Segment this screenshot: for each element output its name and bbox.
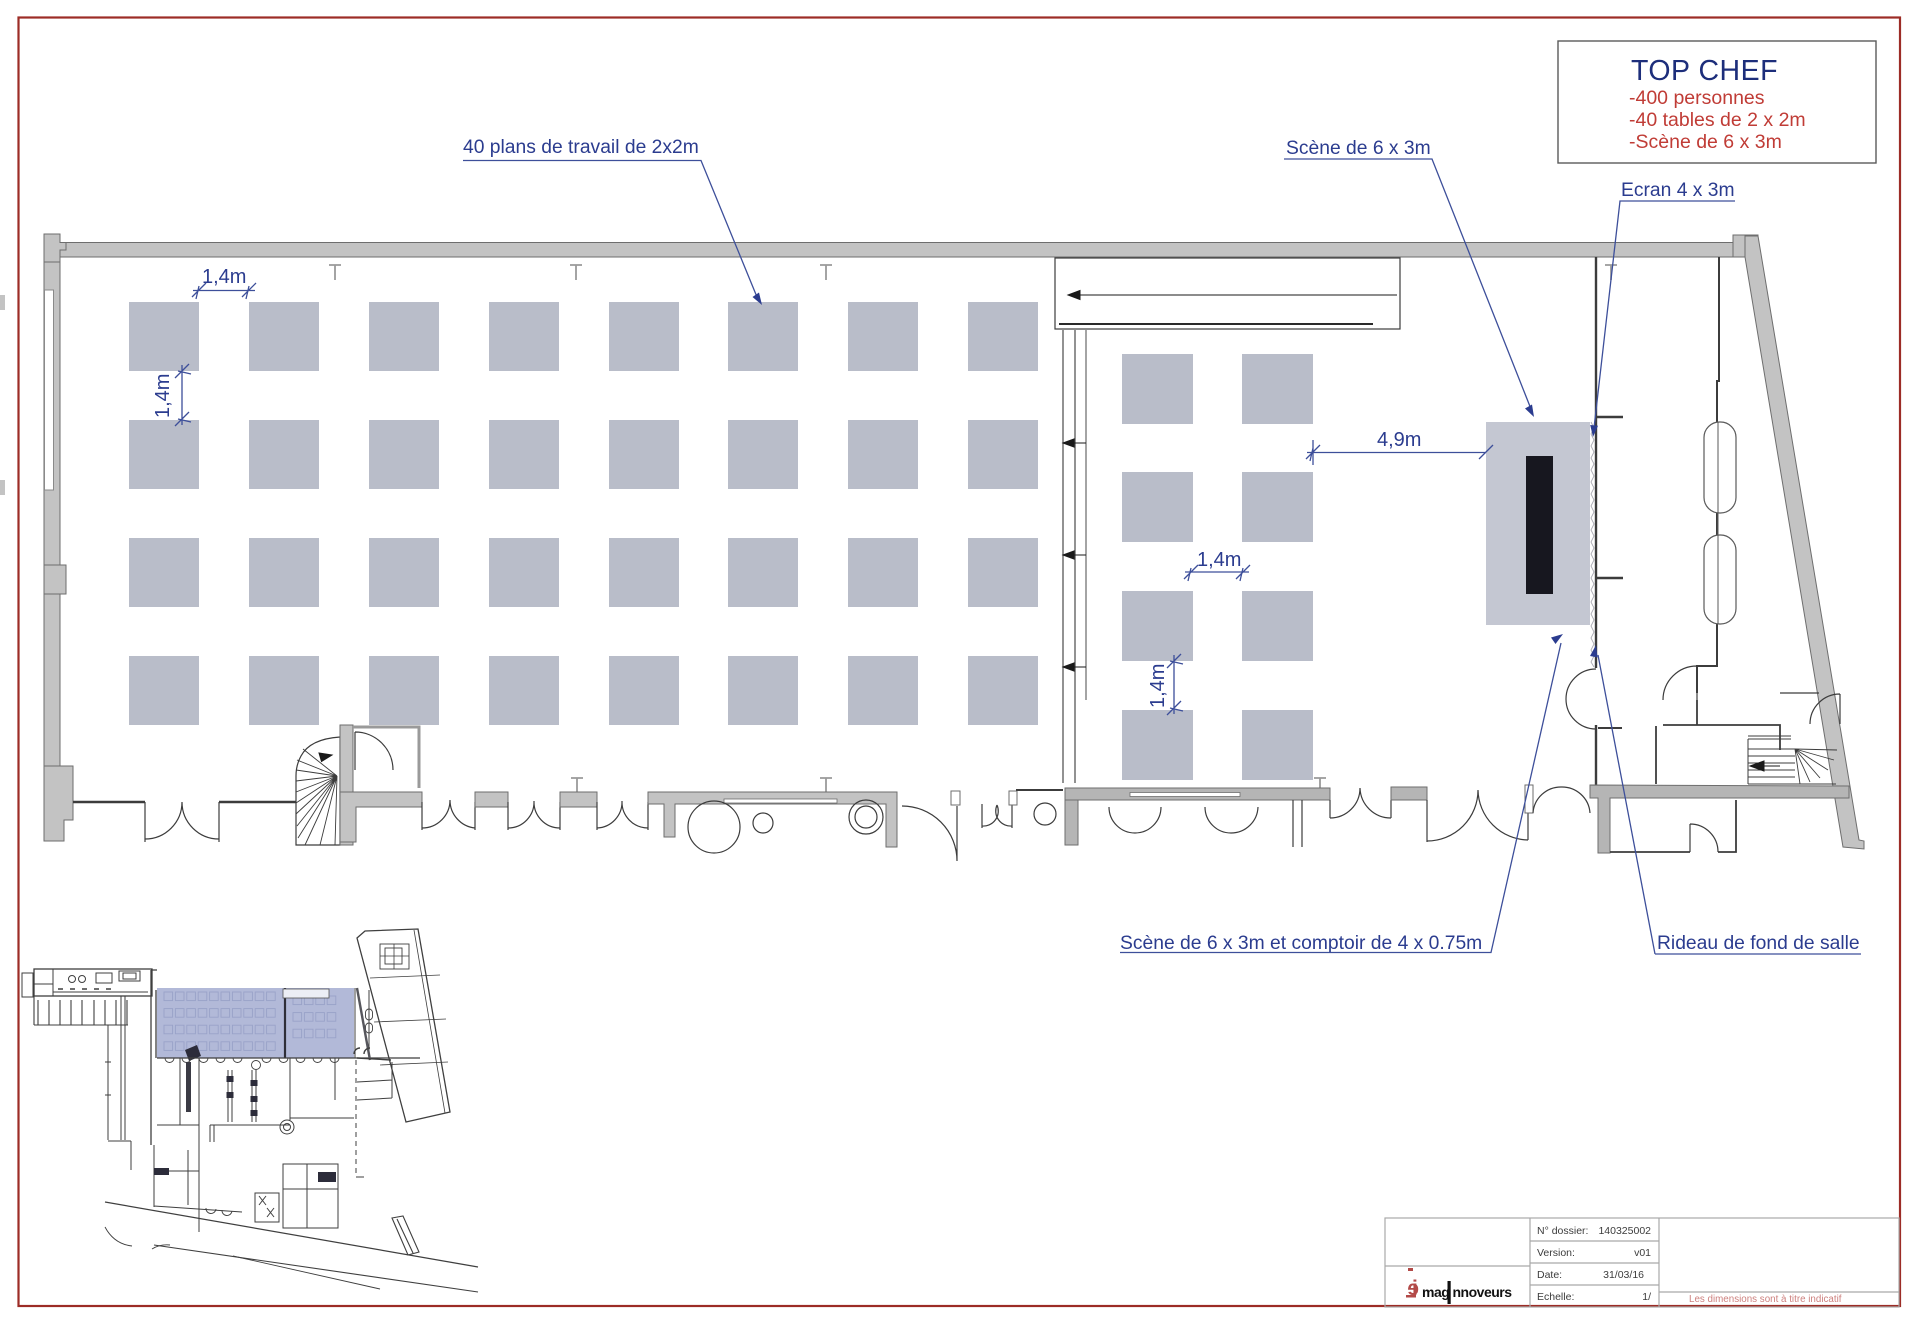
- svg-text:v01: v01: [1634, 1247, 1651, 1259]
- svg-text:mag: mag: [1422, 1284, 1449, 1300]
- svg-text:1,4m: 1,4m: [152, 374, 174, 418]
- svg-text:1,4m: 1,4m: [1197, 549, 1241, 571]
- svg-text:Scène de 6 x 3m: Scène de 6 x 3m: [1286, 138, 1431, 159]
- svg-text:1,4m: 1,4m: [202, 266, 246, 288]
- svg-text:31/03/16: 31/03/16: [1603, 1269, 1644, 1281]
- svg-text:Echelle:: Echelle:: [1537, 1291, 1574, 1303]
- svg-text:Version:: Version:: [1537, 1247, 1575, 1259]
- svg-text:nnoveurs: nnoveurs: [1453, 1284, 1513, 1300]
- svg-text:Scène de 6 x 3m et comptoir d: Scène de 6 x 3m et comptoir de 4 x 0.75m: [1120, 933, 1482, 954]
- svg-text:4,9m: 4,9m: [1377, 429, 1421, 451]
- svg-text:140325002: 140325002: [1598, 1225, 1651, 1237]
- svg-text:N° dossier:: N° dossier:: [1537, 1225, 1588, 1237]
- svg-text:-Scène de 6 x 3m: -Scène de 6 x 3m: [1629, 131, 1782, 153]
- svg-text:-400 personnes: -400 personnes: [1629, 87, 1765, 109]
- svg-text:Ecran 4 x 3m: Ecran 4 x 3m: [1621, 180, 1735, 201]
- svg-text:Rideau de fond de salle: Rideau de fond de salle: [1657, 933, 1860, 954]
- svg-text:1,4m: 1,4m: [1147, 664, 1169, 708]
- svg-text:-40 tables de 2 x 2m: -40 tables de 2 x 2m: [1629, 109, 1806, 131]
- svg-text:1/: 1/: [1642, 1291, 1651, 1303]
- svg-text:Date:: Date:: [1537, 1269, 1562, 1281]
- svg-text:40 plans de travail de 2x2m: 40 plans de travail de 2x2m: [463, 137, 699, 158]
- svg-text:TOP CHEF: TOP CHEF: [1631, 55, 1778, 87]
- svg-text:Les dimensions sont à titre in: Les dimensions sont à titre indicatif: [1689, 1294, 1842, 1305]
